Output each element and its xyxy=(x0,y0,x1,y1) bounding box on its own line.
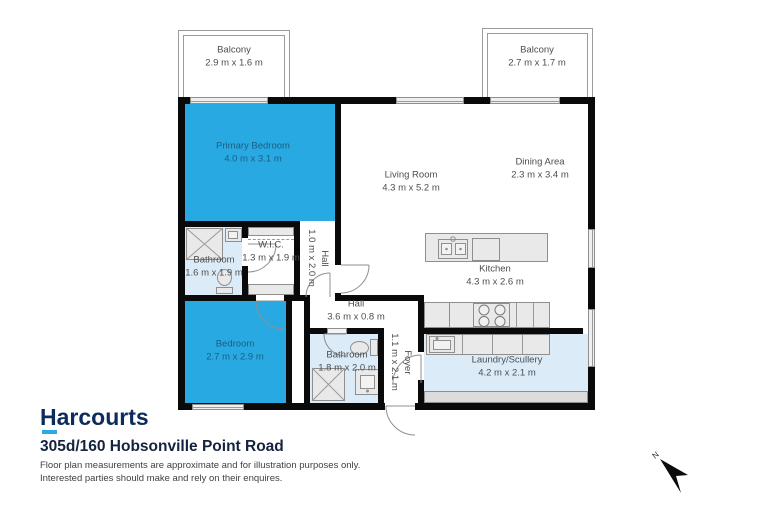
room-label-bedroom: Bedroom2.7 m x 2.9 m xyxy=(206,338,264,363)
wic-shelf xyxy=(248,284,294,295)
laundry-bench xyxy=(424,391,588,403)
wall xyxy=(418,295,424,352)
property-address: 305d/160 Hobsonville Point Road xyxy=(40,438,284,456)
room-label-primary-bedroom: Primary Bedroom4.0 m x 3.1 m xyxy=(216,140,290,165)
stove-fixture xyxy=(473,303,510,327)
north-arrow: N xyxy=(642,442,702,502)
door-opening xyxy=(418,352,424,380)
sliding-door xyxy=(190,97,268,104)
wall xyxy=(286,301,292,403)
wall xyxy=(418,380,424,403)
disclaimer-line-1: Floor plan measurements are approximate … xyxy=(40,460,360,471)
harcourts-logo: Harcourts xyxy=(40,404,149,431)
room-label-laundry: Laundry/Scullery4.2 m x 2.1 m xyxy=(472,354,543,379)
room-label-hall-lower: Hall3.6 m x 0.8 m xyxy=(327,298,385,323)
sink-basin xyxy=(360,375,375,389)
window xyxy=(396,97,464,104)
window xyxy=(588,229,595,268)
wall xyxy=(304,301,310,403)
wardrobe-shelf xyxy=(248,227,294,236)
dishwasher-fixture xyxy=(472,238,500,261)
north-label: N xyxy=(651,450,661,461)
island-sink-basin xyxy=(441,243,452,255)
room-label-kitchen: Kitchen4.3 m x 2.6 m xyxy=(466,263,524,288)
room-label-balcony-left: Balcony2.9 m x 1.6 m xyxy=(205,44,263,69)
window xyxy=(588,309,595,367)
wall xyxy=(178,221,300,227)
plan-linework xyxy=(0,0,768,512)
wall xyxy=(304,328,327,334)
island-sink-basin xyxy=(455,243,466,255)
wall xyxy=(242,227,248,238)
room-label-balcony-right: Balcony2.7 m x 1.7 m xyxy=(508,44,566,69)
logo-underline xyxy=(42,430,57,434)
counter-divider xyxy=(492,335,493,354)
room-label-hall-upper: Hall1.0 m x 2.0 m xyxy=(304,229,330,287)
door-arc xyxy=(386,406,415,435)
door-arc xyxy=(341,265,369,293)
window xyxy=(192,404,244,410)
room-label-bathroom-lower: Bathroom1.8 m x 2.0 m xyxy=(318,349,376,374)
wall xyxy=(178,97,185,410)
room-label-bathroom-upper: Bathroom1.6 m x 1.9 m xyxy=(185,254,243,279)
counter-divider xyxy=(533,303,534,327)
door-threshold xyxy=(327,328,347,334)
kitchen-cabinet xyxy=(424,302,450,328)
wall xyxy=(378,334,384,403)
laundry-sink-basin xyxy=(433,340,451,350)
floor-plan-page: Balcony2.9 m x 1.6 m Balcony2.7 m x 1.7 … xyxy=(0,0,768,512)
room-label-foyer: Foyer1.1 m x 2.1 m xyxy=(387,333,413,391)
room-label-wic: W.I.C.1.3 m x 1.9 m xyxy=(242,239,300,264)
wall xyxy=(418,328,583,334)
counter-divider xyxy=(462,335,463,354)
toilet-tank xyxy=(216,287,233,294)
sink-basin xyxy=(228,231,238,239)
north-arrow-glyph xyxy=(660,459,688,493)
sliding-door xyxy=(490,97,560,104)
wall xyxy=(335,104,341,265)
wall xyxy=(178,295,256,301)
disclaimer-line-2: Interested parties should make and rely … xyxy=(40,473,282,484)
entry-door-opening xyxy=(385,403,415,410)
room-label-dining-area: Dining Area2.3 m x 3.4 m xyxy=(511,156,569,181)
counter-divider xyxy=(522,335,523,354)
room-label-living-room: Living Room4.3 m x 5.2 m xyxy=(382,169,440,194)
counter-divider xyxy=(516,303,517,327)
